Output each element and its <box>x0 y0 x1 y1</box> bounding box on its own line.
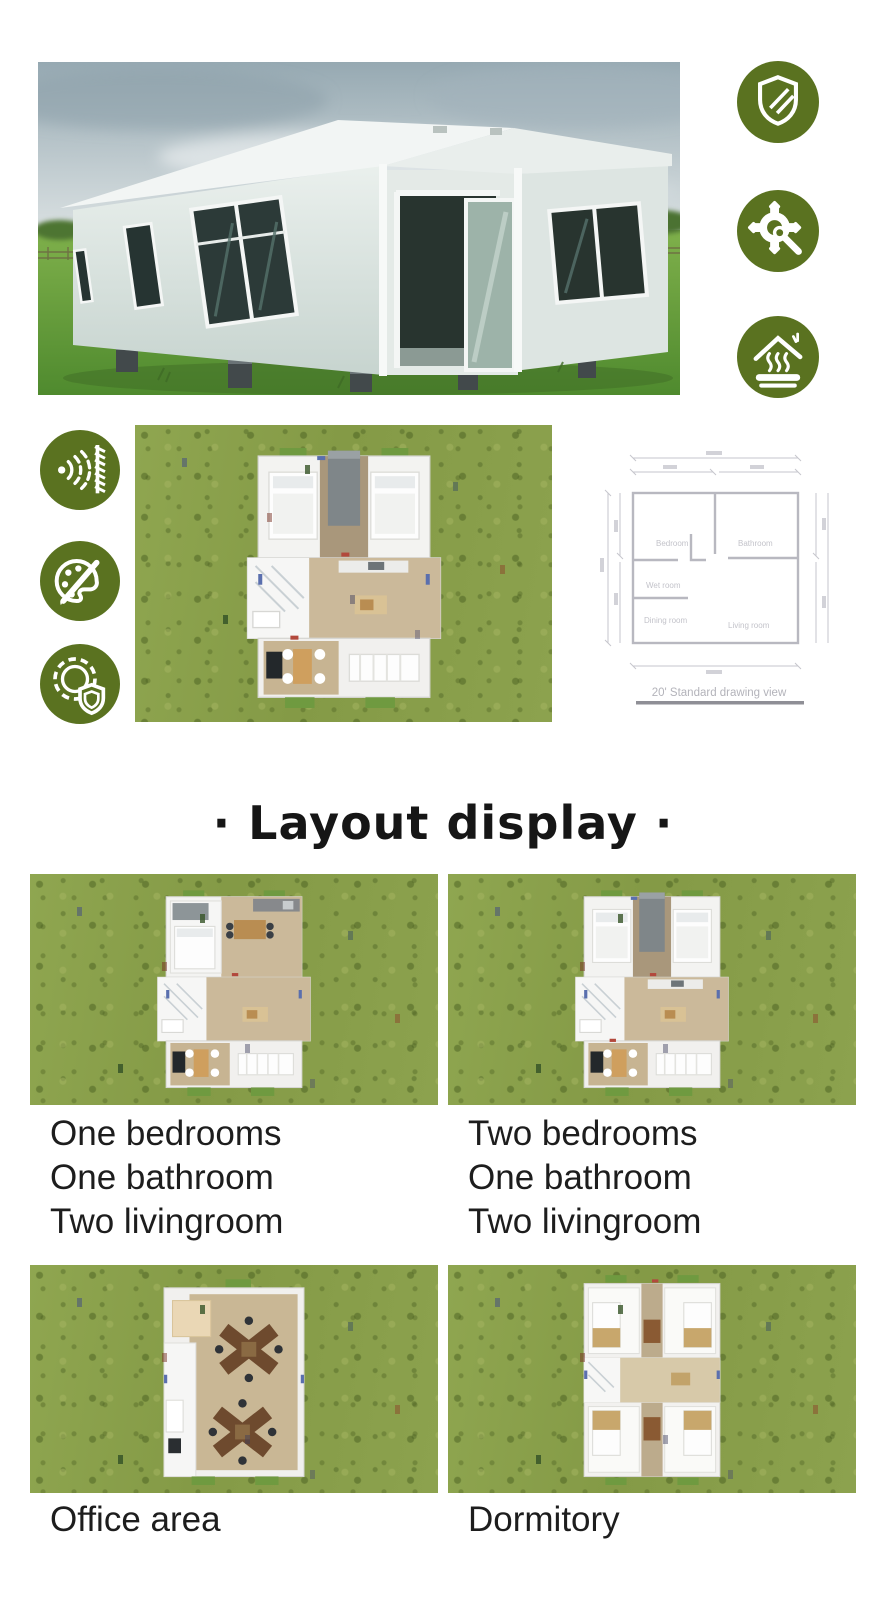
one-bedroom-plan-illustration <box>128 884 340 1096</box>
gear-shield-icon <box>40 644 120 724</box>
label-line: Office area <box>50 1498 221 1542</box>
label-line: One bathroom <box>468 1156 701 1200</box>
office-area-floorplan-image <box>30 1265 438 1493</box>
label-line: Two livingroom <box>468 1200 701 1244</box>
container-house-photo <box>38 62 680 395</box>
drawing-room-label: Living room <box>728 621 770 630</box>
floorplan-image-two-bedroom-large <box>135 425 552 722</box>
label-line: One bathroom <box>50 1156 283 1200</box>
soundproofing-icon <box>40 430 120 510</box>
product-description-page: Bedroom Bathroom Wet room Dining room Li… <box>0 0 886 1600</box>
label-line: Two livingroom <box>50 1200 283 1244</box>
card-label-office-area: Office area <box>50 1498 221 1542</box>
drawing-caption: 20' Standard drawing view <box>652 687 787 699</box>
two-bedroom-floorplan-image <box>448 874 856 1105</box>
label-line: One bedrooms <box>50 1112 283 1156</box>
drawing-room-label: Wet room <box>646 581 681 590</box>
insulated-roof-icon <box>737 316 819 398</box>
one-bedroom-floorplan-image <box>30 874 438 1105</box>
office-plan-illustration <box>128 1273 340 1485</box>
house-photo-illustration <box>38 62 680 395</box>
two-bedroom-plan-illustration <box>210 440 478 708</box>
label-line: Dormitory <box>468 1498 620 1542</box>
layout-display-heading: · Layout display · <box>0 796 886 850</box>
drawing-room-label: Bedroom <box>656 539 689 548</box>
drawing-room-label: Bathroom <box>738 539 773 548</box>
dormitory-plan-illustration <box>546 1273 758 1485</box>
drawing-room-label: Dining room <box>644 616 687 625</box>
gear-wrench-icon <box>737 190 819 272</box>
shield-stripes-icon <box>737 61 819 143</box>
card-label-two-bedroom: Two bedrooms One bathroom Two livingroom <box>468 1112 701 1244</box>
technical-drawing: Bedroom Bathroom Wet room Dining room Li… <box>578 438 860 716</box>
label-line: Two bedrooms <box>468 1112 701 1156</box>
paint-palette-icon <box>40 541 120 621</box>
card-label-dormitory: Dormitory <box>468 1498 620 1542</box>
two-bedroom-plan-illustration <box>546 884 758 1096</box>
dormitory-floorplan-image <box>448 1265 856 1493</box>
card-label-one-bedroom: One bedrooms One bathroom Two livingroom <box>50 1112 283 1244</box>
